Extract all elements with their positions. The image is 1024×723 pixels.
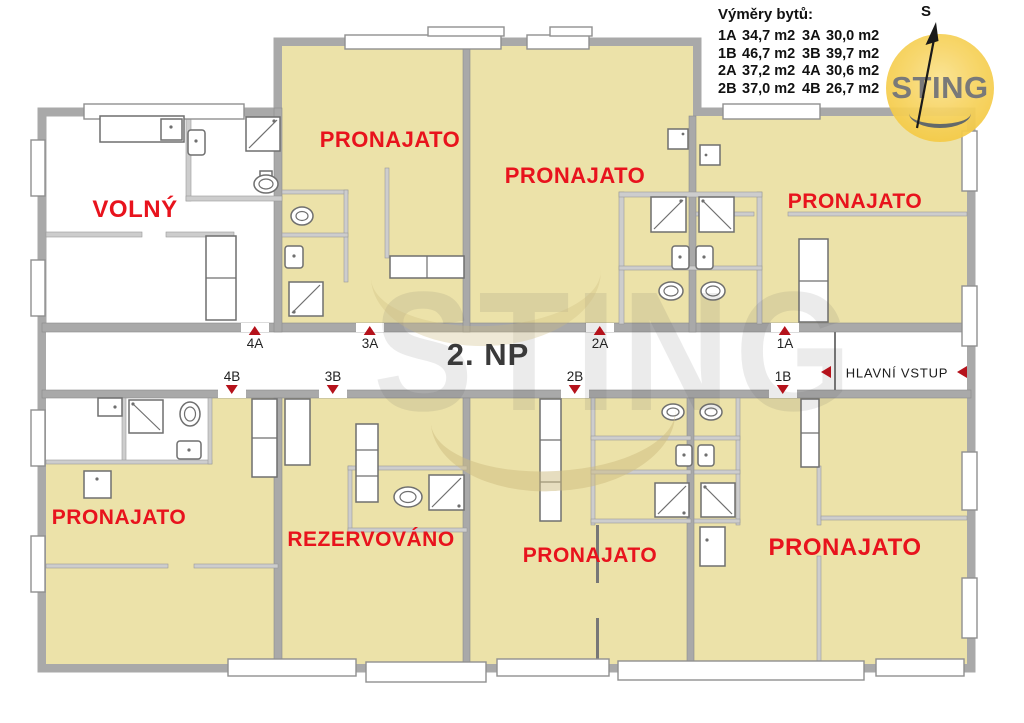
unit-marker-4B: 4B	[224, 369, 241, 394]
legend-unit-id: 2B	[718, 81, 742, 99]
legend-unit-area: 46,7 m2	[742, 46, 802, 64]
unit-marker-3A: 3A	[362, 326, 379, 351]
unit-label: 1A	[777, 336, 794, 351]
legend-unit-area: 39,7 m2	[826, 46, 886, 64]
unit-marker-2B: 2B	[567, 369, 584, 394]
legend-row: 1A34,7 m23A30,0 m2	[718, 28, 886, 46]
legend-unit-area: 37,0 m2	[742, 81, 802, 99]
legend-unit-id: 3A	[802, 28, 826, 46]
sink-symbol	[285, 246, 303, 268]
sink-symbol	[291, 207, 313, 225]
legend-unit-id: 1A	[718, 28, 742, 46]
unit-entrance-triangle-icon	[327, 385, 339, 394]
legend-unit-area: 34,7 m2	[742, 28, 802, 46]
kitchen-counter-symbol	[100, 116, 184, 142]
unit-entrance-triangle-icon	[226, 385, 238, 394]
shower-symbol	[655, 483, 689, 517]
sink-symbol	[188, 130, 205, 155]
legend-row: 2A37,2 m24A30,6 m2	[718, 63, 886, 81]
unit-label: 4A	[247, 336, 264, 351]
shower-symbol	[289, 282, 323, 316]
unit-marker-2A: 2A	[592, 326, 609, 351]
unit-marker-4A: 4A	[247, 326, 264, 351]
cabinet-symbol	[84, 471, 111, 498]
status-label-3A: PRONAJATO	[320, 127, 461, 153]
floor-plan-page: STING 2. NP HLAVNÍ VSTUP Výměry bytů: 1A…	[0, 0, 1024, 723]
legend-row: 1B46,7 m23B39,7 m2	[718, 46, 886, 64]
cabinet-symbol	[98, 398, 122, 416]
unit-label: 2B	[567, 369, 584, 384]
sink-symbol	[177, 441, 201, 459]
legend-row: 2B37,0 m24B26,7 m2	[718, 81, 886, 99]
legend-title: Výměry bytů:	[718, 6, 886, 23]
shower-symbol	[699, 197, 734, 232]
shower-symbol	[701, 483, 735, 517]
status-label-2B: PRONAJATO	[523, 544, 657, 568]
toilet-symbol	[180, 402, 200, 426]
unit-entrance-triangle-icon	[777, 385, 789, 394]
floor-level-label: 2. NP	[447, 337, 530, 373]
status-label-1A: PRONAJATO	[788, 190, 922, 214]
cabinet-symbol	[700, 527, 725, 566]
legend-unit-id: 4A	[802, 63, 826, 81]
status-label-2A: PRONAJATO	[505, 163, 646, 189]
entrance-arrow-left-icon	[821, 366, 831, 378]
apartment-areas-legend: Výměry bytů: 1A34,7 m23A30,0 m21B46,7 m2…	[718, 6, 886, 98]
unit-label: 1B	[775, 369, 792, 384]
unit-label: 4B	[224, 369, 241, 384]
unit-label: 3A	[362, 336, 379, 351]
legend-unit-id: 3B	[802, 46, 826, 64]
entrance-arrow-left-icon	[957, 366, 967, 378]
north-arrow-icon	[880, 0, 960, 140]
unit-entrance-triangle-icon	[249, 326, 261, 335]
main-entrance-label: HLAVNÍ VSTUP	[846, 366, 949, 381]
unit-marker-1B: 1B	[775, 369, 792, 394]
status-label-1B: PRONAJATO	[769, 534, 922, 562]
shower-symbol	[429, 475, 464, 510]
unit-entrance-triangle-icon	[364, 326, 376, 335]
status-label-4A: VOLNÝ	[92, 196, 177, 224]
unit-entrance-triangle-icon	[779, 326, 791, 335]
unit-label: 3B	[325, 369, 342, 384]
legend-unit-area: 26,7 m2	[826, 81, 886, 99]
legend-rows: 1A34,7 m23A30,0 m21B46,7 m23B39,7 m22A37…	[718, 28, 886, 98]
legend-unit-id: 4B	[802, 81, 826, 99]
sink-symbol	[394, 487, 422, 507]
wardrobe-symbol	[206, 236, 236, 320]
unit-marker-3B: 3B	[325, 369, 342, 394]
unit-entrance-triangle-icon	[594, 326, 606, 335]
legend-unit-area: 37,2 m2	[742, 63, 802, 81]
status-label-4B: PRONAJATO	[52, 506, 186, 530]
north-label: S	[921, 3, 931, 20]
shower-symbol	[129, 400, 163, 433]
legend-unit-area: 30,6 m2	[826, 63, 886, 81]
unit-marker-1A: 1A	[777, 326, 794, 351]
legend-unit-id: 2A	[718, 63, 742, 81]
status-label-3B: REZERVOVÁNO	[287, 528, 454, 552]
shower-symbol	[246, 117, 280, 151]
legend-unit-area: 30,0 m2	[826, 28, 886, 46]
shower-symbol	[651, 197, 686, 232]
legend-unit-id: 1B	[718, 46, 742, 64]
unit-label: 2A	[592, 336, 609, 351]
unit-entrance-triangle-icon	[569, 385, 581, 394]
